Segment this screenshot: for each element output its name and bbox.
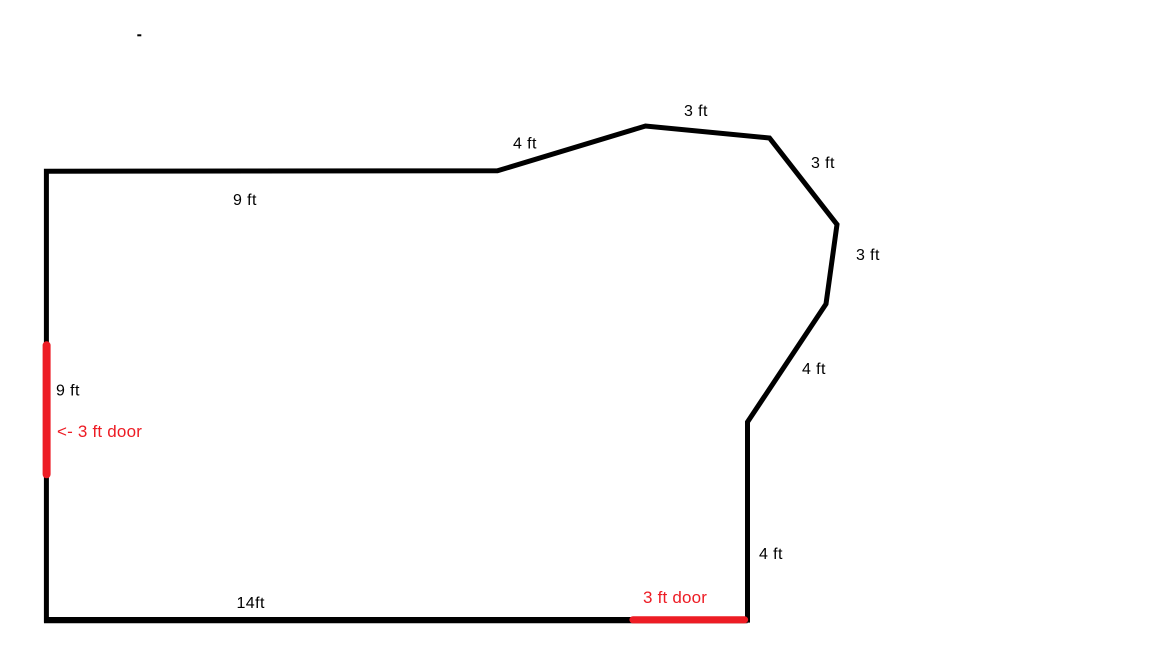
svg-text:14ft: 14ft [237, 595, 265, 612]
svg-text:3 ft: 3 ft [856, 247, 880, 264]
svg-text:3 ft: 3 ft [684, 103, 708, 120]
svg-text:3 ft door: 3 ft door [643, 588, 707, 607]
svg-text:<- 3 ft door: <- 3 ft door [57, 422, 142, 441]
svg-text:4 ft: 4 ft [802, 361, 826, 378]
svg-text:3 ft: 3 ft [811, 155, 835, 172]
svg-text:9 ft: 9 ft [233, 192, 257, 209]
svg-text:4 ft: 4 ft [759, 546, 783, 563]
svg-text:9 ft: 9 ft [56, 383, 80, 400]
svg-text:4 ft: 4 ft [513, 136, 537, 153]
